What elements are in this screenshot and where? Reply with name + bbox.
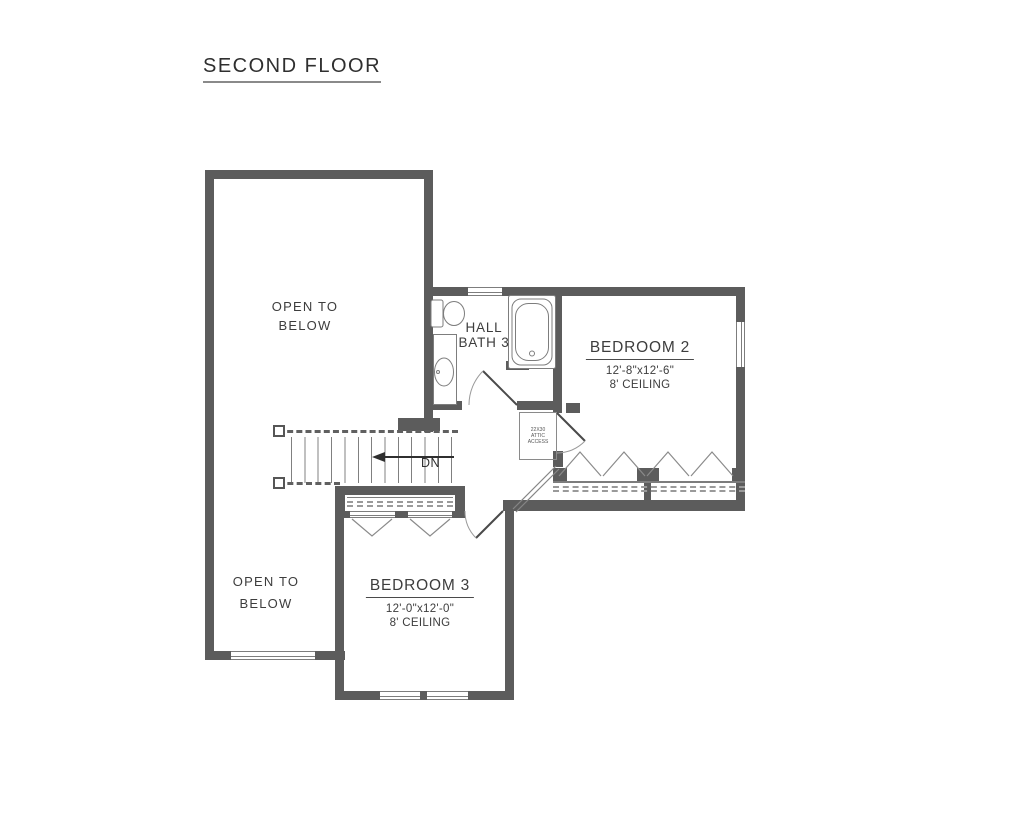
wall <box>424 287 468 296</box>
bedroom3-ceiling-height: 8' CEILING <box>366 617 474 629</box>
hall-bath-line2: BATH 3 <box>458 335 509 350</box>
window <box>380 691 420 700</box>
window-pane-line <box>380 696 420 697</box>
attic-access-label: ACCESS <box>528 439 549 445</box>
newel-post <box>273 425 285 437</box>
bedroom2-dimensions: 12'-8"x12'-6" <box>586 365 694 377</box>
window <box>231 651 315 660</box>
down-arrow-head <box>372 452 385 462</box>
wall <box>732 468 745 482</box>
bathtub-icon <box>508 295 556 369</box>
vanity-sink-icon <box>433 334 457 405</box>
hall-bath-label: HALL BATH 3 <box>458 320 509 350</box>
open-to-below-label: OPEN TO BELOW <box>233 571 299 615</box>
bedroom3-label-block: BEDROOM 3 12'-0"x12'-0" 8' CEILING <box>366 577 474 629</box>
stair-railing <box>278 430 458 433</box>
window <box>736 322 745 367</box>
bath-door <box>469 371 517 405</box>
wall <box>637 468 659 482</box>
window-pane-line <box>468 292 502 293</box>
wall <box>335 486 344 700</box>
floor-plan: SECOND FLOOR <box>0 0 1024 819</box>
window-sill-dash <box>553 486 745 488</box>
window-pane-line <box>231 656 315 657</box>
wall <box>205 170 433 179</box>
wall <box>205 651 231 660</box>
wall <box>736 287 745 322</box>
wall <box>468 691 514 700</box>
wall <box>503 500 745 511</box>
window-sill-line <box>347 497 453 498</box>
room-label-bedroom2: BEDROOM 2 <box>586 339 694 360</box>
newel-post <box>273 477 285 489</box>
window <box>468 287 502 296</box>
wall <box>205 170 214 660</box>
window-sill-dash <box>347 505 453 507</box>
window <box>350 511 395 518</box>
window-pane-line <box>741 322 742 367</box>
bedroom3-dimensions: 12'-0"x12'-0" <box>366 603 474 615</box>
window-pane-line <box>427 696 468 697</box>
open-to-below-line2: BELOW <box>233 593 299 615</box>
wall <box>517 401 557 410</box>
wall <box>505 500 514 700</box>
window-sill-line <box>553 481 745 483</box>
window <box>427 691 468 700</box>
window-pane-line <box>408 515 452 516</box>
down-arrow-shaft <box>384 456 454 458</box>
stairs-direction-label: DN <box>421 456 440 470</box>
plan-title: SECOND FLOOR <box>203 55 381 83</box>
wall <box>335 486 465 495</box>
window-pane-line <box>350 515 395 516</box>
bedroom2-label-block: BEDROOM 2 12'-8"x12'-6" 8' CEILING <box>586 339 694 391</box>
wall <box>553 468 567 482</box>
bedroom2-ceiling-height: 8' CEILING <box>586 379 694 391</box>
stair-railing <box>278 482 340 485</box>
open-to-below-line1: OPEN TO <box>272 297 338 316</box>
open-to-below-label: OPEN TO BELOW <box>272 297 338 335</box>
attic-access-box: 22X30 ATTIC ACCESS <box>519 412 557 460</box>
window-sill-dash <box>347 501 453 503</box>
wall <box>335 691 380 700</box>
wall <box>395 511 408 518</box>
window-mullion <box>420 691 427 700</box>
room-label-bedroom3: BEDROOM 3 <box>366 577 474 598</box>
wall <box>452 511 465 518</box>
window <box>408 511 452 518</box>
bedroom3-door <box>465 511 503 538</box>
bedroom2-door <box>557 413 585 453</box>
open-to-below-line2: BELOW <box>272 316 338 335</box>
hall-bath-line1: HALL <box>458 320 509 335</box>
wall <box>566 403 580 413</box>
bedroom3-window-chevrons <box>352 519 450 536</box>
open-to-below-line1: OPEN TO <box>233 571 299 593</box>
window-sill-dash <box>553 490 745 492</box>
